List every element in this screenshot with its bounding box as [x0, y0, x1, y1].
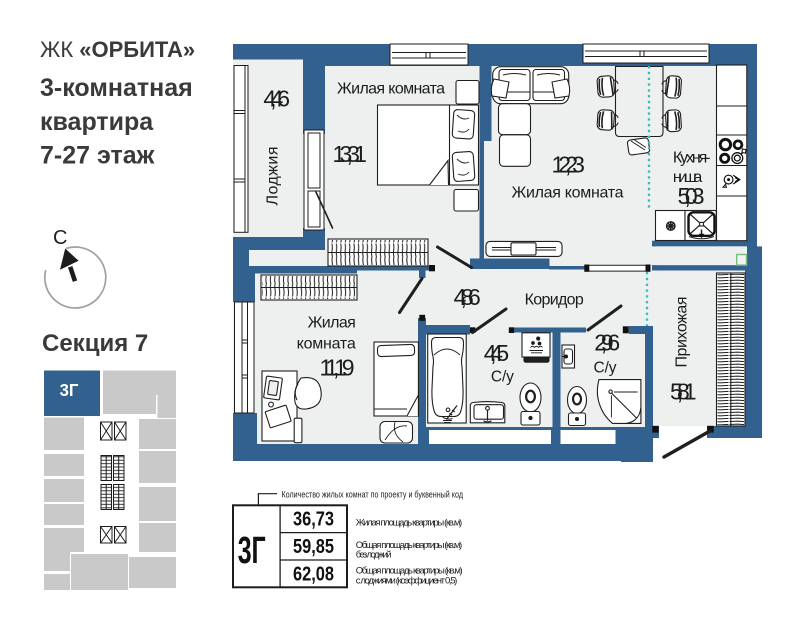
svg-text:квартира: квартира: [40, 108, 154, 136]
svg-text:4,86: 4,86: [454, 284, 481, 310]
svg-text:Кухня-: Кухня-: [673, 150, 711, 167]
svg-text:С: С: [53, 227, 67, 249]
svg-text:7-27 этаж: 7-27 этаж: [40, 142, 155, 170]
svg-text:С/у: С/у: [491, 369, 514, 386]
svg-text:12,23: 12,23: [552, 152, 585, 178]
svg-text:Прихожая: Прихожая: [674, 297, 691, 368]
svg-text:3Г: 3Г: [60, 379, 79, 400]
svg-text:С/у: С/у: [594, 360, 617, 377]
svg-text:5,81: 5,81: [670, 379, 697, 405]
svg-text:2,96: 2,96: [594, 330, 620, 356]
svg-text:Секция 7: Секция 7: [42, 330, 148, 357]
svg-text:Количество жилых комнат по про: Количество жилых комнат по проекту и бук…: [282, 490, 464, 501]
svg-text:36,73: 36,73: [293, 509, 334, 531]
svg-text:Жилая комната: Жилая комната: [512, 185, 624, 202]
svg-text:4,45: 4,45: [484, 340, 509, 366]
svg-text:Жилая: Жилая: [308, 314, 356, 331]
svg-text:11,19: 11,19: [320, 355, 355, 381]
svg-text:Жилая площадь квартиры (кв.м): Жилая площадь квартиры (кв.м): [356, 517, 463, 528]
svg-text:Жилая комната: Жилая комната: [337, 81, 445, 98]
svg-text:3Г: 3Г: [238, 530, 266, 572]
svg-text:без лоджий: без лоджий: [356, 550, 392, 561]
svg-text:Лоджия: Лоджия: [265, 147, 282, 206]
svg-text:59,85: 59,85: [293, 536, 334, 558]
svg-text:Коридор: Коридор: [525, 292, 584, 309]
svg-text:62,08: 62,08: [293, 564, 334, 586]
svg-text:3-комнатная: 3-комнатная: [40, 74, 193, 102]
svg-text:ЖК «ОРБИТА»: ЖК «ОРБИТА»: [40, 37, 195, 62]
svg-text:4,46: 4,46: [263, 85, 290, 111]
svg-text:5,03: 5,03: [677, 183, 704, 209]
svg-text:комната: комната: [297, 336, 356, 353]
svg-text:с лоджиями (коэффициент 0,5): с лоджиями (коэффициент 0,5): [356, 576, 458, 587]
svg-text:13,31: 13,31: [333, 141, 367, 167]
